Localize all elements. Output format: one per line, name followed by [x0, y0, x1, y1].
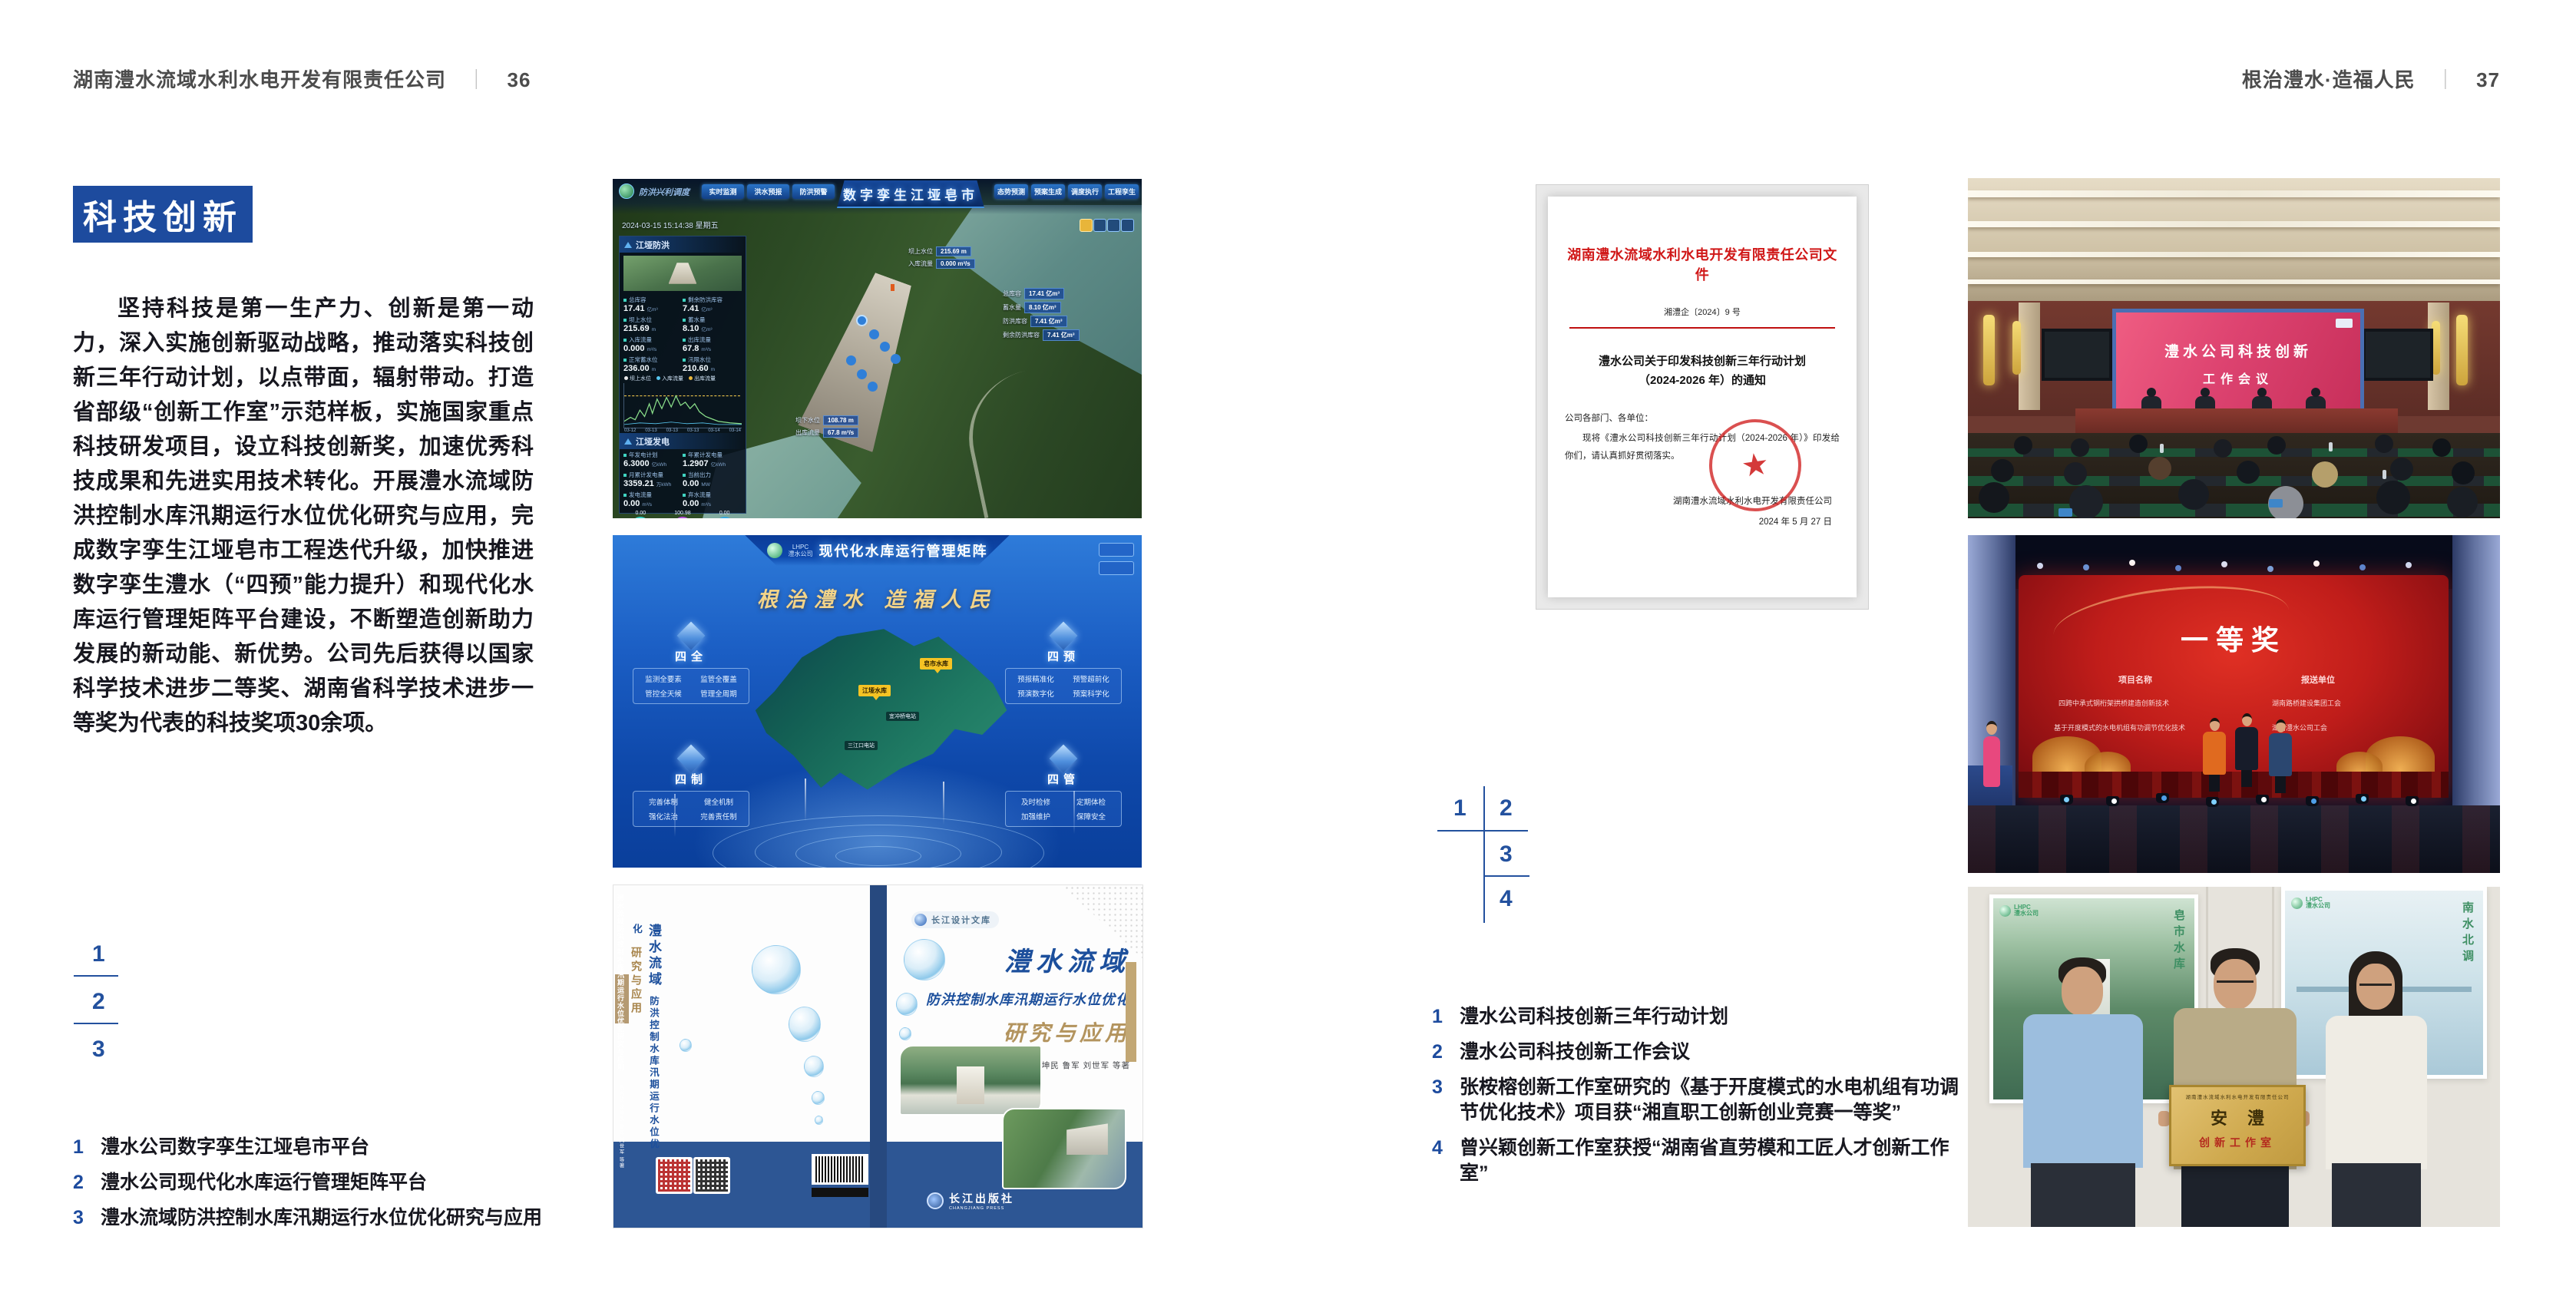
stat-value: 7.41 — [683, 304, 699, 313]
stat-label: 当前出力 — [683, 471, 742, 479]
panel-item: 加强维护 — [1009, 811, 1063, 822]
tool-icon — [1107, 219, 1120, 232]
generation-stats: 年发电计划6.3000亿kWh 年累计发电量1.2907亿kWh 月累计发电量3… — [620, 449, 746, 509]
award-row-org: 湖南路桥建设集团工会 — [2272, 698, 2341, 708]
audience-heads-row — [1979, 482, 2009, 513]
dam-thumbnail — [623, 256, 742, 291]
stat-value: 0.00 — [683, 499, 699, 508]
series-brand: 长江设计文库 — [911, 911, 999, 928]
plaque-title: 安澧 — [2171, 1105, 2303, 1129]
caption-row: 2 澧水公司科技创新工作会议 — [1432, 1040, 1969, 1065]
hand — [2158, 1111, 2170, 1126]
front-title-accent: 研究与应用 — [899, 1017, 1130, 1047]
presenter-suit — [2235, 713, 2258, 787]
water-bubble — [804, 1056, 824, 1077]
city-skyline-graphic — [2019, 772, 2449, 798]
flood-stats: 总库容17.41亿m³ 剩余防洪库容7.41亿m³ 坝上水位215.69m 蓄水… — [620, 294, 746, 374]
section-title-badge: 科技创新 — [73, 186, 253, 243]
seat-row-covers — [1968, 504, 2500, 517]
tissue-box — [2269, 499, 2283, 508]
column-header-project: 项目名称 — [2118, 673, 2152, 686]
document-title-line1: 澧水公司关于印发科技创新三年行动计划 — [1565, 352, 1840, 371]
screen-title-line2: 工作会议 — [2203, 369, 2273, 387]
front-tan-block — [1126, 962, 1136, 1062]
front-title-main: 澧水流域 — [899, 941, 1130, 978]
caption-number: 4 — [1432, 1136, 1460, 1186]
unit-output: 100.98 — [673, 511, 692, 516]
award-title: 一等奖 — [2019, 618, 2449, 658]
award-row-project: 基于开度模式的水电机组有功调节优化技术 — [2054, 722, 2185, 732]
slogan-calligraphy: 根治澧水 造福人民 — [613, 583, 1142, 613]
caption-row: 2 澧水公司现代化水库运行管理矩阵平台 — [73, 1170, 564, 1195]
panel-siguan: 四管 及时检修定期体检 加强维护保障安全 — [1005, 749, 1122, 827]
figure-marker-1: 1 — [92, 941, 105, 967]
water-bubble — [815, 1116, 823, 1125]
tool-icon — [1093, 219, 1106, 232]
ceiling-light-strip — [1968, 221, 2500, 227]
tissue-box — [2058, 508, 2072, 517]
legend-item: 入库流量 — [662, 376, 683, 382]
light-pillar — [805, 779, 806, 822]
light-pillar — [943, 782, 944, 825]
publisher-icon — [927, 1192, 944, 1209]
caption-text: 澧水流域防洪控制水库汛期运行水位优化研究与应用 — [101, 1205, 564, 1231]
unit-output: 0.00 — [631, 511, 650, 516]
right-caption-list: 1 澧水公司科技创新三年行动计划 2 澧水公司科技创新工作会议 3 张桉榕创新工… — [1432, 1004, 1969, 1196]
stat-unit: m³/s — [642, 502, 652, 508]
document-red-rule — [1569, 327, 1835, 329]
stat-label: 年累计发电量 — [683, 451, 742, 459]
panel-item: 强化法治 — [637, 811, 690, 822]
panel-item: 定期体检 — [1064, 796, 1118, 807]
map-pin-jiangya: 江垭水库 — [858, 685, 891, 696]
figure-marker-3: 3 — [1500, 841, 1513, 868]
caption-text: 澧水公司数字孪生江垭皂市平台 — [101, 1135, 564, 1160]
poster-right-calligraphy: 南水北调 — [2459, 901, 2475, 966]
water-bubble — [812, 1091, 825, 1105]
panel-icon — [1050, 622, 1078, 650]
figure-official-document: 湖南澧水流域水利水电开发有限责任公司文件 湘澧企〔2024〕9 号 澧水公司关于… — [1536, 184, 1869, 610]
panel-item: 管理全周期 — [692, 688, 746, 699]
stat-unit: 亿m³ — [701, 327, 712, 332]
spine-authors: 洪兴骏 沈坤民 鲁军 刘世军 等著 — [618, 1085, 623, 1169]
publisher-logo: 长江出版社 CHANGJIANG PRESS — [927, 1191, 1014, 1211]
stat-value: 210.60 — [683, 364, 709, 373]
wall-lamp — [2012, 321, 2021, 375]
water-bottle — [2160, 444, 2164, 453]
water-bubble — [680, 1039, 692, 1052]
back-title-3: 研究与应用 — [630, 947, 643, 1016]
flood-panel-header: 江垭防洪 — [620, 236, 746, 253]
wall-tv — [2042, 329, 2112, 381]
award-row-project: 四跨中承式钢桁架拱桥建造创新技术 — [2058, 698, 2169, 708]
qr-code — [656, 1157, 693, 1194]
ceiling-light-strip — [1968, 279, 2500, 284]
tool-icon — [1121, 219, 1134, 232]
publisher-name-en: CHANGJIANG PRESS — [949, 1206, 1014, 1211]
signature-date: 2024 年 5 月 27 日 — [1565, 512, 1832, 533]
panel-item: 预案科学化 — [1064, 688, 1118, 699]
stat-label: 出库流量 — [683, 336, 742, 344]
stat-value: 0.00 — [623, 499, 640, 508]
figure-digital-twin-platform: 防洪兴利调度 实时监测 洪水预报 防洪预警 数字孪生江垭皂市 态势预测 预案生成… — [613, 179, 1142, 518]
generation-panel-title: 江垭发电 — [636, 435, 670, 448]
upstream-callout: 坝上水位215.69 m 入库流量0.000 m³/s — [908, 246, 975, 271]
figure-meeting-photo: 澧水公司科技创新 工作会议 — [1968, 178, 2500, 518]
logo-abbr: LHPC — [789, 544, 813, 551]
flood-panel-title: 江垭防洪 — [636, 239, 670, 251]
caption-text: 澧水公司现代化水库运行管理矩阵平台 — [101, 1170, 564, 1195]
stat-label: 入库流量 — [623, 336, 683, 344]
stat-unit: m — [652, 327, 656, 332]
stat-value: 0.000 — [623, 344, 645, 353]
caption-text: 张桉榕创新工作室研究的《基于开度模式的水电机组有功调节优化技术》项目获“湘直职工… — [1460, 1075, 1969, 1126]
caption-row: 1 澧水公司数字孪生江垭皂市平台 — [73, 1135, 564, 1160]
caption-row: 3 张桉榕创新工作室研究的《基于开度模式的水电机组有功调节优化技术》项目获“湘直… — [1432, 1075, 1969, 1126]
panel-item: 及时检修 — [1009, 796, 1063, 807]
dashboard-datetime: 2024-03-15 15:14:38 星期五 — [622, 219, 719, 230]
plaque-header: 湖南澧水流域水利水电开发有限责任公司 — [2171, 1093, 2303, 1100]
panel-item: 监测全要素 — [637, 673, 690, 684]
seat-row-covers — [1968, 476, 2500, 486]
document-number: 湘澧企〔2024〕9 号 — [1565, 306, 1840, 318]
stage-lights-row — [2037, 563, 2043, 569]
caption-number: 3 — [1432, 1075, 1460, 1126]
panel-icon — [624, 242, 632, 248]
stat-unit: m — [711, 367, 715, 372]
wall-tv — [2363, 329, 2433, 381]
figure-marker-4: 4 — [1500, 886, 1513, 912]
caption-number: 3 — [73, 1205, 101, 1231]
audience-heads-row — [2014, 436, 2032, 455]
unit-output: 0.00 — [716, 511, 734, 516]
figure-plaque-photo: LHPC 澧水公司 皂市水库 LHPC 澧水公司 南水北调 — [1968, 887, 2500, 1227]
figure-marker-2: 2 — [1500, 795, 1513, 822]
panel-title: 四预 — [1005, 648, 1122, 664]
map-label-station: 三江口电站 — [845, 741, 878, 750]
gate-markers — [856, 315, 868, 326]
stat-value: 0.00 — [683, 479, 699, 488]
water-level-chart — [623, 383, 742, 428]
water-bottle — [2329, 442, 2333, 451]
panel-title: 四全 — [633, 648, 749, 664]
app-logo-icon — [619, 184, 634, 199]
glasses — [2359, 984, 2392, 992]
header-button — [1099, 561, 1134, 575]
stat-label: 剩余防洪库容 — [683, 296, 742, 304]
stat-label: 月累计发电量 — [623, 471, 683, 479]
figure-marker-3: 3 — [92, 1037, 105, 1063]
stat-value: 67.8 — [683, 344, 699, 353]
plaque-subtitle: 创新工作室 — [2171, 1135, 2303, 1150]
stat-unit: 亿m³ — [647, 307, 658, 312]
stat-unit: m³/s — [701, 502, 711, 508]
stat-value: 8.10 — [683, 324, 699, 333]
company-logo-icon — [767, 543, 782, 558]
screen-title-line1: 澧水公司科技创新 — [2164, 340, 2312, 361]
caption-text: 澧水公司科技创新三年行动计划 — [1460, 1004, 1969, 1030]
header-button — [1099, 543, 1134, 557]
stat-label: 总库容 — [623, 296, 683, 304]
water-bubble — [789, 1007, 821, 1042]
panel-icon — [1050, 745, 1078, 773]
module-label: 防洪兴利调度 — [639, 186, 689, 198]
panel-item: 保障安全 — [1064, 811, 1118, 822]
front-title-sub: 防洪控制水库汛期运行水位优化 — [899, 989, 1130, 1009]
seal-star-icon: ★ — [1739, 446, 1771, 485]
panel-icon — [677, 622, 706, 650]
legend-item: 出库流量 — [694, 376, 716, 382]
page-number: 37 — [2476, 68, 2500, 91]
right-page-header: 根治澧水·造福人民 ｜ 37 — [2242, 64, 2500, 93]
tab-project-twin: 工程孪生 — [1105, 184, 1139, 199]
stat-unit: MW — [701, 482, 710, 488]
figure-divider — [74, 975, 118, 977]
spine-title: 澧水流域防洪控制水库汛期运行水位优化研究与应用 洪兴骏 沈坤民 鲁军 刘世军 等… — [616, 894, 626, 1217]
legend-item: 坝上水位 — [630, 376, 651, 382]
caption-row: 3 澧水流域防洪控制水库汛期运行水位优化研究与应用 — [73, 1205, 564, 1231]
figure-matrix-platform: LHPC 澧水公司 现代化水库运行管理矩阵 根治澧水 造福人民 皂市水库 江垭水… — [613, 535, 1142, 868]
barcode-label — [812, 1188, 868, 1197]
floor-reflections — [1968, 805, 2500, 873]
gauge-icon — [631, 517, 650, 518]
light-lens-glow — [2064, 797, 2069, 802]
magazine-spread: 湖南澧水流域水利水电开发有限责任公司 ｜ 36 科技创新 坚持科技是第一生产力、… — [0, 0, 2576, 1306]
seat-row-covers — [1968, 448, 2500, 457]
document-salutation: 公司各部门、各单位： — [1565, 412, 1840, 424]
ripple-ring — [835, 846, 921, 866]
head-table — [2075, 408, 2398, 433]
tab-dispatch-execution: 调度执行 — [1068, 184, 1102, 199]
caption-text: 澧水公司科技创新工作会议 — [1460, 1040, 1969, 1065]
panel-title: 四管 — [1005, 771, 1122, 787]
caption-row: 4 曾兴颖创新工作室获授“湖南省直劳模和工匠人才创新工作室” — [1432, 1136, 1969, 1186]
unit-gauges: 0.001号机 100.982号机 0.003号机 — [620, 511, 746, 518]
matrix-header: LHPC 澧水公司 现代化水库运行管理矩阵 — [745, 535, 1010, 566]
poster-logo: LHPC 澧水公司 — [1999, 904, 2039, 917]
stat-value: 1.2907 — [683, 459, 709, 468]
left-caption-list: 1 澧水公司数字孪生江垭皂市平台 2 澧水公司现代化水库运行管理矩阵平台 3 澧… — [73, 1135, 564, 1241]
poster-left-calligraphy: 皂市水库 — [2171, 909, 2187, 974]
tab-flood-warning: 防洪预警 — [792, 184, 835, 199]
book-spine — [870, 885, 887, 1228]
chart-svg — [624, 383, 742, 428]
panel-item: 管控全天候 — [637, 688, 690, 699]
panel-item: 预报精准化 — [1009, 673, 1063, 684]
stat-label: 年发电计划 — [623, 451, 683, 459]
brand-logo-icon — [914, 914, 927, 926]
tab-realtime-monitor: 实时监测 — [702, 184, 744, 199]
stat-value: 3359.21 — [623, 479, 654, 488]
glasses — [2217, 980, 2254, 989]
gauge-icon — [673, 517, 692, 518]
host-figure — [1979, 721, 2005, 795]
caption-row: 1 澧水公司科技创新三年行动计划 — [1432, 1004, 1969, 1030]
figure-grid-hline — [1437, 830, 1528, 832]
crane-marker — [891, 284, 894, 291]
generation-panel-header: 江垭发电 — [620, 433, 746, 449]
panel-item: 监管全覆盖 — [692, 673, 746, 684]
tab-situation-forecast: 态势预测 — [994, 184, 1028, 199]
stat-label: 发电流量 — [623, 491, 683, 499]
caption-text: 曾兴颖创新工作室获授“湖南省直劳模和工匠人才创新工作室” — [1460, 1136, 1969, 1186]
document-page: 湖南澧水流域水利水电开发有限责任公司文件 湘澧企〔2024〕9 号 澧水公司关于… — [1548, 197, 1857, 597]
stat-label: 弃水流量 — [683, 491, 742, 499]
header-separator: ｜ — [466, 68, 487, 91]
back-cover-title: 澧水流域 防洪控制水库汛期运行水位优化 研究与应用 — [629, 924, 663, 1154]
gauge-icon — [716, 517, 734, 518]
stat-value: 236.00 — [623, 364, 650, 373]
stat-unit: 亿kWh — [652, 462, 667, 468]
left-page-header: 湖南澧水流域水利水电开发有限责任公司 ｜ 36 — [73, 64, 531, 93]
screen-logo — [2336, 319, 2353, 328]
flood-panel: 江垭防洪 总库容17.41亿m³ 剩余防洪库容7.41亿m³ 坝上水位215.6… — [619, 236, 746, 514]
document-title-line2: （2024-2026 年）的通知 — [1565, 371, 1840, 390]
spine-title-text: 澧水流域防洪控制水库汛期运行水位优化研究与应用 — [617, 894, 624, 1071]
figure-book-cover: 澧水流域 防洪控制水库汛期运行水位优化 研究与应用 澧水流域防洪控制水库汛期运行… — [613, 884, 1143, 1228]
stat-label: 正常蓄水位 — [623, 355, 683, 364]
panel-title: 四制 — [633, 771, 749, 787]
map-pin-zaoshi: 皂市水库 — [920, 658, 952, 670]
page-number: 36 — [508, 68, 531, 91]
poster-logo: LHPC 澧水公司 — [2291, 897, 2330, 909]
stat-label: 汛限水位 — [683, 355, 742, 364]
panel-item: 预警超前化 — [1064, 673, 1118, 684]
caption-number: 2 — [73, 1170, 101, 1195]
stat-value: 6.3000 — [623, 459, 650, 468]
ceiling-light-strip — [1968, 190, 2500, 197]
wall-pilaster — [2019, 303, 2040, 410]
logo-name: 澧水公司 — [2014, 911, 2039, 917]
page-motto: 根治澧水·造福人民 — [2242, 68, 2416, 91]
stat-unit: m³/s — [647, 347, 657, 352]
logo-name: 澧水公司 — [2306, 903, 2330, 909]
brand-text: 长江设计文库 — [931, 914, 991, 926]
stat-unit: 亿m³ — [701, 307, 712, 312]
panel-siyu: 四预 预报精准化预警超前化 预演数字化预案科学化 — [1005, 626, 1122, 704]
panel-item: 完善体制 — [637, 796, 690, 807]
stat-unit: m — [652, 367, 656, 372]
matrix-title: 现代化水库运行管理矩阵 — [819, 541, 988, 560]
header-separator: ｜ — [2435, 68, 2456, 91]
panel-siquan: 四全 监测全要素监管全覆盖 管控全天候管理全周期 — [633, 626, 749, 704]
wall-lamp — [2456, 315, 2468, 385]
panel-item: 预演数字化 — [1009, 688, 1063, 699]
tab-flood-forecast: 洪水预报 — [747, 184, 789, 199]
publisher-name: 长江出版社 — [949, 1191, 1014, 1206]
figure-grid-hline — [1483, 875, 1529, 877]
chart-legend: 坝上水位 入库流量 出库流量 — [620, 374, 746, 383]
stat-label: 蓄水量 — [683, 316, 742, 324]
qr-code — [693, 1157, 730, 1194]
capacity-callout: 总库容17.41 亿m³ 蓄水量8.10 亿m³ 防洪库容7.41 亿m³ 剩余… — [1003, 288, 1080, 343]
stat-unit: 亿kWh — [711, 462, 726, 468]
awardee-orange — [2203, 718, 2226, 792]
dam-photo-corner — [1002, 1108, 1126, 1189]
signature-org: 湖南澧水流域水利水电开发有限责任公司 — [1565, 491, 1832, 512]
figure-marker-1: 1 — [1453, 795, 1467, 822]
led-screen: 一等奖 项目名称 报送单位 四跨中承式钢桁架拱桥建造创新技术 湖南路桥建设集团工… — [2019, 575, 2449, 798]
barcode — [812, 1154, 868, 1185]
stat-unit: 万kWh — [656, 482, 672, 488]
mountain-road — [956, 355, 1123, 517]
company-name: 湖南澧水流域水利水电开发有限责任公司 — [73, 68, 446, 91]
company-logo-icon — [2291, 898, 2303, 909]
figure-grid-vline — [1483, 786, 1485, 923]
dam-photo-front — [899, 1045, 1042, 1116]
panel-icon — [624, 438, 632, 445]
panel-sizhi: 四制 完善体制健全机制 强化法治完善责任制 — [633, 749, 749, 827]
panel-item: 健全机制 — [692, 796, 746, 807]
water-bubble — [752, 945, 801, 994]
logo-name: 澧水公司 — [789, 551, 813, 557]
caption-number: 2 — [1432, 1040, 1460, 1065]
stat-value: 17.41 — [623, 304, 645, 313]
back-title-1: 澧水流域 — [646, 924, 661, 988]
panel-item: 完善责任制 — [692, 811, 746, 822]
audience-heads-row — [1991, 459, 2014, 482]
stat-unit: m³/s — [701, 347, 711, 352]
caption-number: 1 — [1432, 1004, 1460, 1030]
panel-icon — [677, 745, 706, 773]
dashboard-title: 数字孪生江垭皂市 — [837, 180, 984, 208]
column-header-org: 报送单位 — [2301, 673, 2335, 686]
map-label-station: 宜冲桥电站 — [886, 712, 919, 721]
body-paragraph: 坚持科技是第一生产力、创新是第一动力，深入实施创新驱动战略，推动落实科技创新三年… — [73, 292, 534, 741]
tab-plan-generation: 预案生成 — [1031, 184, 1065, 199]
figure-award-photo: 一等奖 项目名称 报送单位 四跨中承式钢桁架拱桥建造创新技术 湖南路桥建设集团工… — [1968, 535, 2500, 873]
stat-value: 215.69 — [623, 324, 650, 333]
caption-number: 1 — [73, 1135, 101, 1160]
company-logo-icon — [1999, 905, 2011, 917]
downstream-callout: 坝下水位108.78 m 出库流量67.8 m³/s — [795, 415, 858, 440]
wall-lamp — [1983, 315, 1995, 385]
figure-marker-2: 2 — [92, 989, 105, 1015]
ceiling-light-strip — [1968, 252, 2500, 257]
tool-icon — [1080, 219, 1093, 232]
awardee-blue — [2269, 719, 2292, 793]
figure-divider — [74, 1023, 118, 1024]
innovation-studio-plaque: 湖南澧水流域水利水电开发有限责任公司 安澧 创新工作室 — [2169, 1085, 2306, 1166]
stat-label: 坝上水位 — [623, 316, 683, 324]
document-red-header: 湖南澧水流域水利水电开发有限责任公司文件 — [1565, 244, 1840, 284]
water-bottle — [2383, 470, 2386, 479]
